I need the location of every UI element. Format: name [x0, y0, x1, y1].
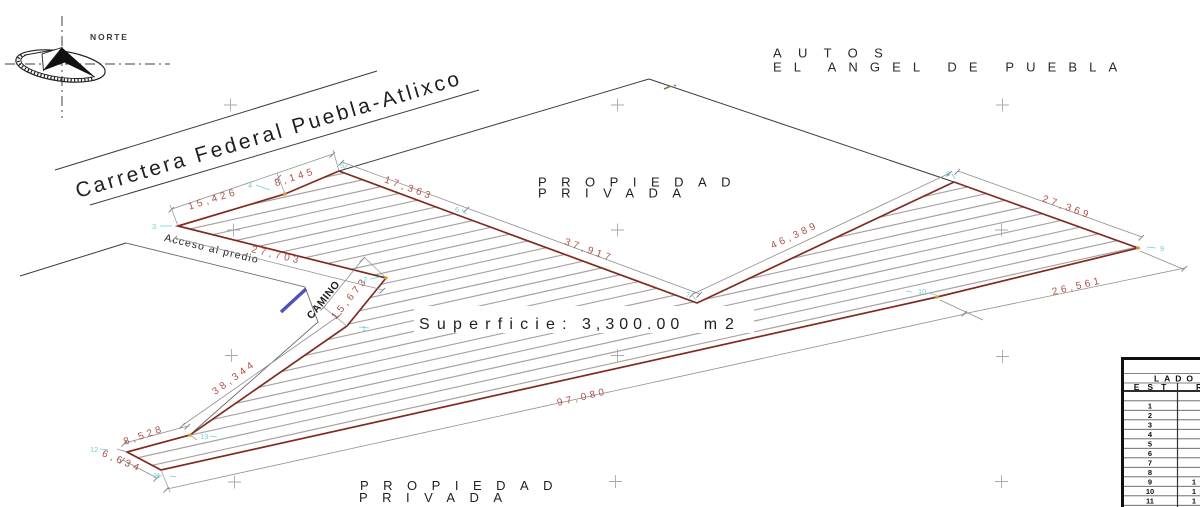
svg-text:5: 5	[340, 161, 344, 170]
svg-text:6: 6	[455, 205, 459, 214]
svg-text:4: 4	[248, 181, 252, 190]
svg-text:1: 1	[1148, 402, 1152, 411]
svg-text:2: 2	[363, 275, 367, 284]
svg-text:12: 12	[90, 445, 98, 454]
svg-text:6: 6	[1148, 449, 1152, 458]
svg-text:Superficie:: Superficie:	[419, 316, 574, 333]
svg-text:10: 10	[1146, 487, 1154, 496]
svg-text:3: 3	[152, 222, 156, 231]
svg-text:3,300.00 m2: 3,300.00 m2	[582, 316, 742, 333]
svg-text:EST: EST	[1134, 382, 1175, 392]
svg-text:1: 1	[1192, 487, 1196, 496]
svg-text:R: R	[1196, 382, 1200, 392]
svg-text:7: 7	[1148, 459, 1152, 468]
svg-text:3: 3	[1148, 421, 1152, 430]
svg-text:EL ANGEL DE PUEBLA: EL ANGEL DE PUEBLA	[773, 60, 1129, 75]
svg-text:8: 8	[1148, 468, 1152, 477]
svg-text:9: 9	[1160, 244, 1164, 253]
svg-text:AUTOS: AUTOS	[773, 46, 899, 61]
svg-text:9: 9	[1148, 478, 1152, 487]
svg-text:PRIVADA: PRIVADA	[538, 186, 696, 201]
svg-text:1: 1	[1192, 497, 1196, 506]
svg-text:5: 5	[1148, 440, 1152, 449]
svg-text:13: 13	[200, 432, 208, 441]
svg-text:1: 1	[1192, 478, 1196, 487]
svg-text:PRIVADA: PRIVADA	[359, 490, 517, 505]
svg-text:11: 11	[1146, 497, 1154, 506]
svg-text:8: 8	[946, 169, 950, 178]
svg-text:1: 1	[362, 324, 366, 333]
svg-text:2: 2	[1148, 411, 1152, 420]
svg-text:10: 10	[918, 287, 926, 296]
svg-text:NORTE: NORTE	[90, 32, 129, 42]
svg-text:7: 7	[686, 290, 690, 299]
